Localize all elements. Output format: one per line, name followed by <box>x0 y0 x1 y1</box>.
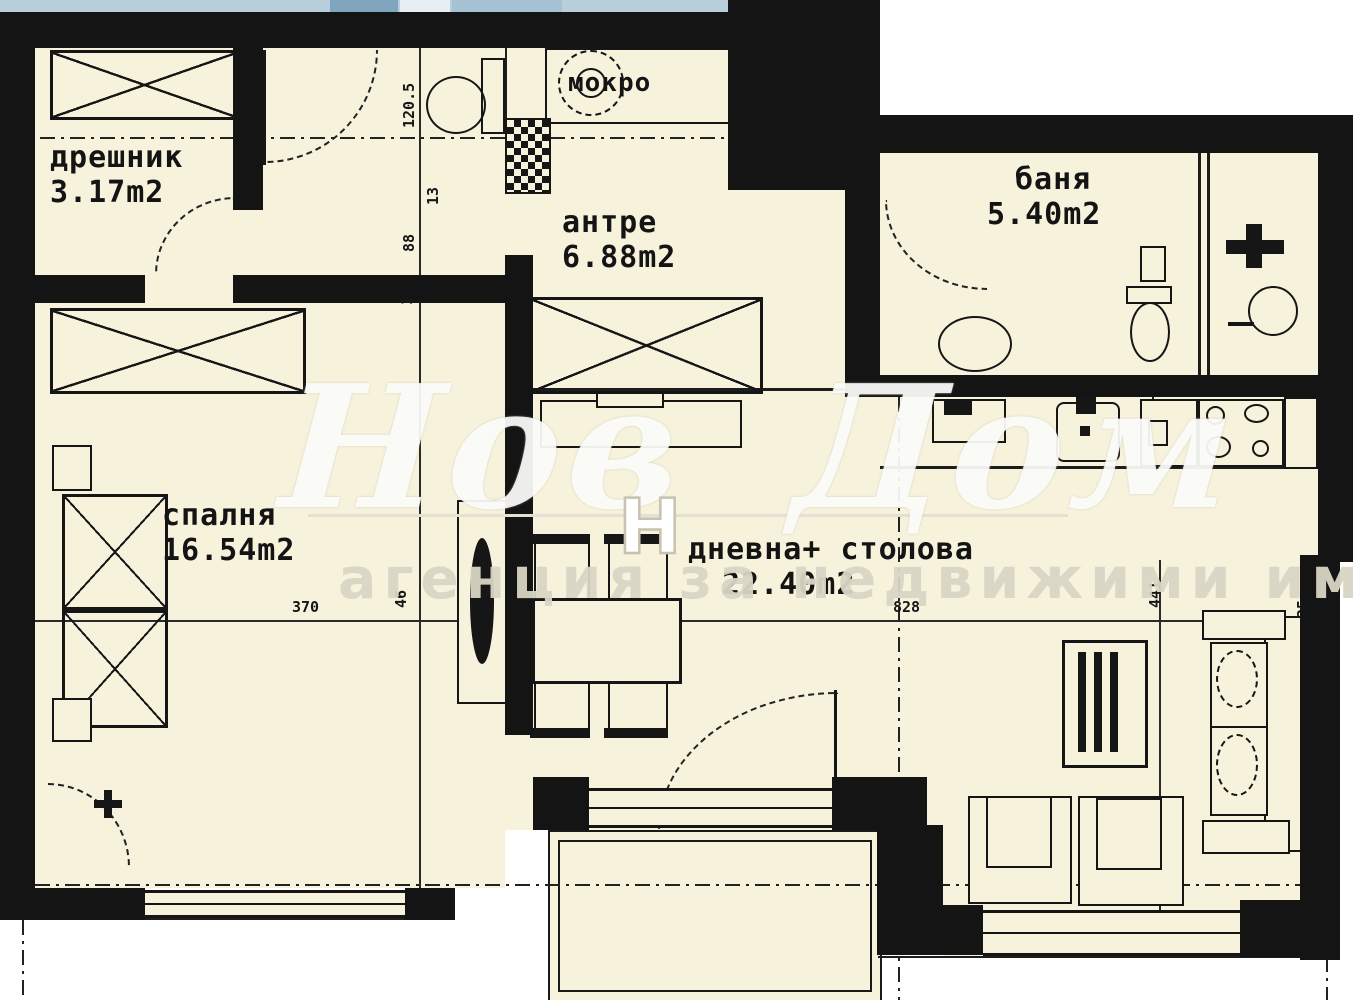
floor-plan: дрешник3.17m2 антре6.88m2 баня5.40m2 спа… <box>0 0 1353 1000</box>
room-label-antre: антре6.88m2 <box>562 205 676 275</box>
wall <box>233 275 505 303</box>
room-name: спалня <box>162 498 276 533</box>
top-strip-shade <box>330 0 398 12</box>
wall <box>832 777 927 830</box>
wall <box>35 275 145 303</box>
top-strip-gap <box>400 0 450 12</box>
terrace <box>548 830 882 1000</box>
wardrobe-x-icon <box>50 50 239 120</box>
bed-icon <box>62 494 168 610</box>
armchair-seat <box>986 796 1052 868</box>
chair-back <box>604 728 668 738</box>
faucet-icon-stem <box>1246 224 1262 268</box>
armchair-seat <box>1096 798 1162 870</box>
section-line-left <box>22 920 24 1000</box>
sofa-back <box>1264 616 1304 852</box>
wall <box>233 48 263 210</box>
banya-strip-wall-b <box>1207 150 1210 375</box>
room-name: дрешник <box>50 140 183 175</box>
dimension-label: 13 <box>424 187 442 205</box>
wall <box>0 12 728 48</box>
window <box>145 890 405 918</box>
watermark-brand: Нов Дом 1 <box>275 348 1353 548</box>
wall <box>533 777 589 830</box>
terrace-inner-line <box>558 840 872 992</box>
coffee-table-icon <box>1062 640 1148 768</box>
toilet-icon <box>426 76 486 134</box>
coffee-table-slat <box>1110 652 1118 752</box>
coffee-table-slat <box>1078 652 1086 752</box>
room-label-dreshnik: дрешник3.17m2 <box>50 140 183 210</box>
agency-logo-icon: Н <box>618 482 682 571</box>
boiler-icon <box>1140 246 1166 282</box>
wall <box>405 888 455 920</box>
wall <box>1240 900 1318 957</box>
wall <box>0 888 145 920</box>
sofa-pillow-icon <box>1216 650 1258 708</box>
sofa-pillow-icon <box>1216 734 1258 796</box>
wall <box>930 905 983 955</box>
room-label-mokro: мокро <box>568 66 651 101</box>
window <box>983 910 1240 956</box>
section-line-right <box>1326 957 1328 1000</box>
coffee-table-slat <box>1094 652 1102 752</box>
room-area: 3.17m2 <box>50 175 164 210</box>
sofa-armrest <box>1202 610 1286 640</box>
top-strip-shade <box>452 0 562 12</box>
room-name: баня <box>1015 162 1091 197</box>
shaft-icon <box>505 118 551 194</box>
entry-door-leaf <box>263 50 266 165</box>
room-name: антре <box>562 205 657 240</box>
dimension-label: 12 <box>398 287 416 305</box>
room-name: мокро <box>568 68 651 98</box>
plant-icon <box>1248 286 1298 336</box>
room-area: 5.40m2 <box>987 197 1101 232</box>
watermark-tagline: агенция за недвижими имоти <box>338 546 1353 612</box>
dimension-label: 120.5 <box>400 83 418 128</box>
chair-back <box>530 728 590 738</box>
nightstand-icon <box>52 445 92 491</box>
plant-leaf-icon <box>1228 322 1254 326</box>
wall <box>0 12 35 920</box>
valve-icon-stem <box>104 790 112 818</box>
banya-strip-wall-a <box>1198 150 1201 375</box>
room-area: 6.88m2 <box>562 240 676 275</box>
room-label-banya: баня5.40m2 <box>1015 162 1101 232</box>
window <box>589 788 832 828</box>
wardrobe-x-icon <box>50 308 306 394</box>
nightstand-icon <box>52 698 92 742</box>
wall <box>880 115 1353 153</box>
dimension-label: 370 <box>292 598 319 616</box>
wall <box>728 0 880 190</box>
sofa-armrest <box>1202 820 1290 854</box>
dimension-label: 88 <box>400 234 418 252</box>
